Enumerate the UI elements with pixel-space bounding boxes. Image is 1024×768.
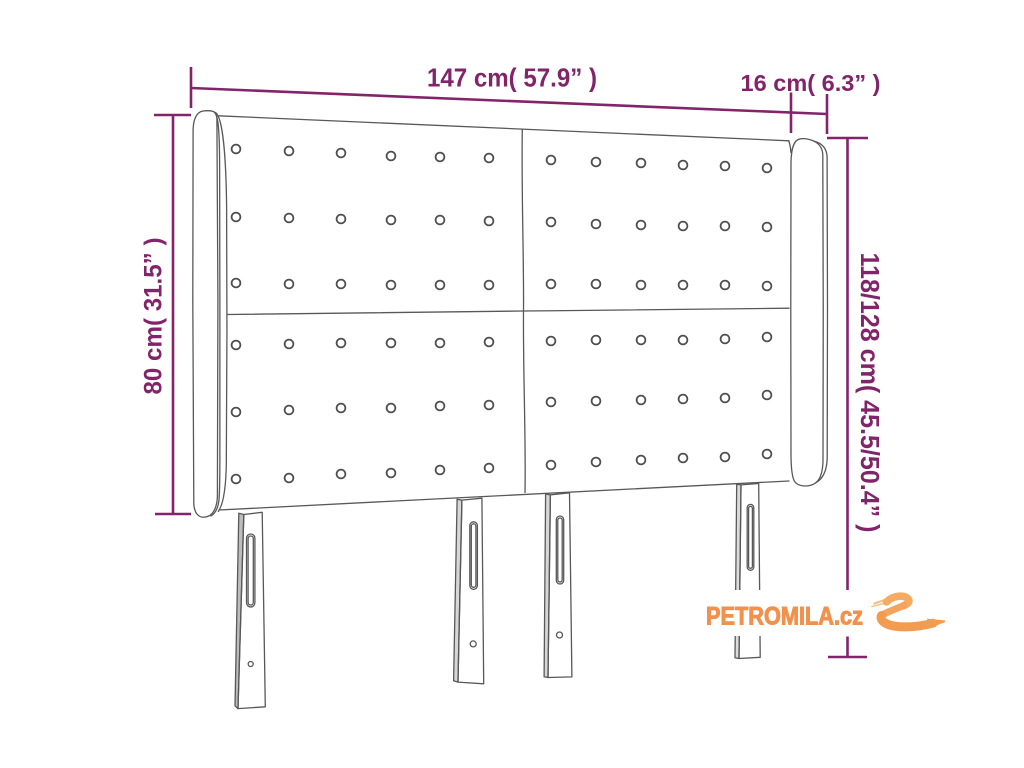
svg-text:147 cm( 57.9” ): 147 cm( 57.9” ) [427, 63, 597, 93]
svg-text:PETROMILA.cz: PETROMILA.cz [706, 603, 863, 631]
svg-text:118/128 cm( 45.5/50.4” ): 118/128 cm( 45.5/50.4” ) [855, 253, 885, 533]
svg-text:80 cm( 31.5” ): 80 cm( 31.5” ) [140, 238, 168, 395]
svg-text:16 cm( 6.3” ): 16 cm( 6.3” ) [741, 70, 881, 96]
